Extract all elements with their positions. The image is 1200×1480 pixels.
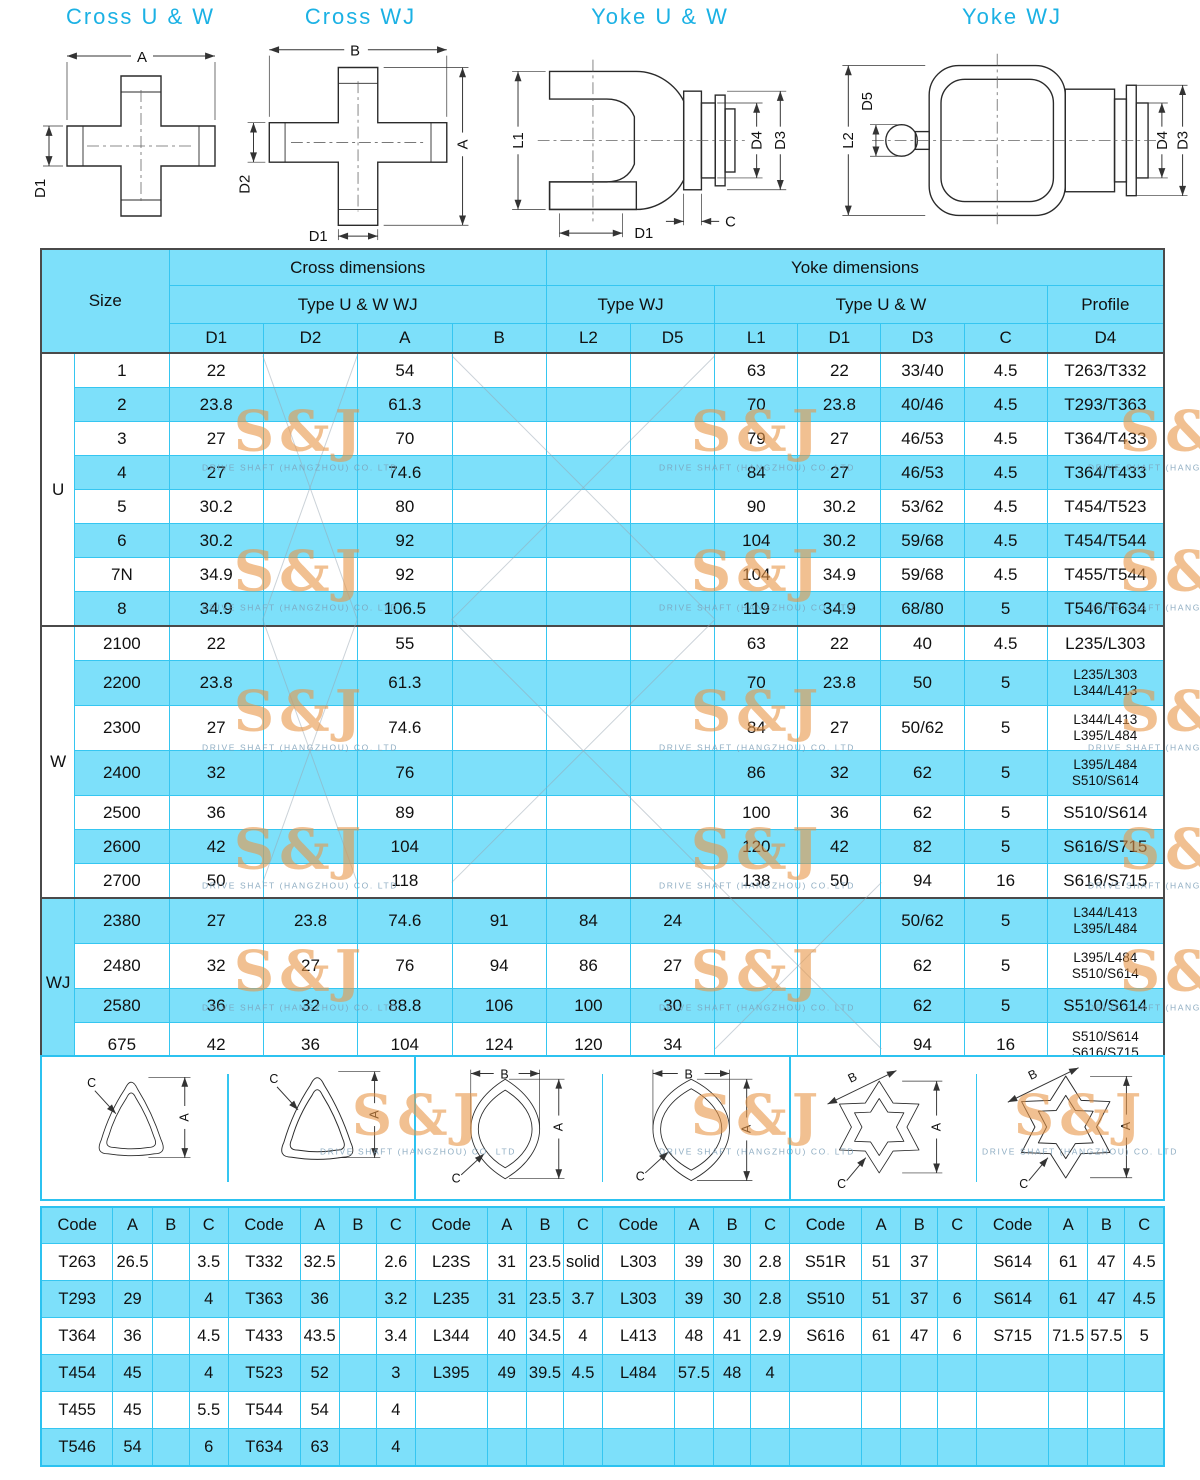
table-cell: 39 — [674, 1281, 713, 1318]
triangle-profile-drawing: A C — [239, 1062, 404, 1194]
table-cell: 47 — [901, 1318, 938, 1355]
table-cell — [751, 1429, 790, 1467]
table-cell: T454/T544 — [1047, 524, 1164, 558]
dim-label-c: C — [1020, 1177, 1029, 1191]
table-cell — [1088, 1429, 1125, 1467]
dim-label-d5: D5 — [860, 92, 876, 111]
table-cell — [1088, 1392, 1125, 1429]
table-cell — [901, 1355, 938, 1392]
dim-label-c: C — [837, 1177, 846, 1191]
lemon-profile-drawing: B A C — [427, 1062, 592, 1194]
table-cell: 36 — [169, 796, 263, 830]
table-cell: 34.9 — [169, 558, 263, 592]
table-cell — [861, 1392, 900, 1429]
table-cell: 89 — [358, 796, 452, 830]
table-cell: L303 — [602, 1244, 674, 1281]
table-cell: T544 — [228, 1392, 300, 1429]
table-cell: 5 — [964, 751, 1047, 796]
table-cell: 30 — [714, 1244, 751, 1281]
table-cell — [152, 1318, 189, 1355]
table-cell: S616/S715 — [1047, 830, 1164, 864]
table-cell: 63 — [715, 626, 798, 661]
table-cell: 2400 — [75, 751, 169, 796]
table-cell — [861, 1355, 900, 1392]
table-cell: 2600 — [75, 830, 169, 864]
table-cell — [452, 388, 546, 422]
table-cell — [487, 1429, 526, 1467]
table-cell — [631, 706, 715, 751]
table-cell — [631, 388, 715, 422]
table-cell: 45 — [113, 1355, 152, 1392]
table-cell — [631, 751, 715, 796]
table-cell: 76 — [358, 751, 452, 796]
column-header: D4 — [1047, 324, 1164, 354]
table-cell: 23.8 — [169, 661, 263, 706]
table-cell — [152, 1281, 189, 1318]
table-cell: 2580 — [75, 989, 169, 1023]
table-cell: 48 — [674, 1318, 713, 1355]
table-cell: solid — [564, 1244, 603, 1281]
table-cell: S616/S715 — [1047, 864, 1164, 899]
table-cell: 39 — [674, 1244, 713, 1281]
table-cell — [263, 524, 357, 558]
cross-uw-title: Cross U & W — [28, 4, 253, 30]
table-cell: 76 — [358, 944, 452, 989]
table-cell: 6 — [189, 1429, 228, 1467]
table-cell: 5 — [1125, 1318, 1164, 1355]
table-cell — [631, 490, 715, 524]
table-cell: L344 — [415, 1318, 487, 1355]
table-cell: 51 — [861, 1281, 900, 1318]
table-row: 2500368910036625S510/S614 — [41, 796, 1164, 830]
table-cell — [263, 592, 357, 627]
profile-lemon-large: B A C — [603, 1057, 789, 1199]
table-row: 2480322776948627625L395/L484S510/S614 — [41, 944, 1164, 989]
table-cell: T263 — [41, 1244, 113, 1281]
table-cell — [714, 1429, 751, 1467]
table-cell: 55 — [358, 626, 452, 661]
table-cell: 84 — [715, 456, 798, 490]
table-cell — [546, 706, 630, 751]
table-cell: 104 — [715, 558, 798, 592]
table-cell: 80 — [358, 490, 452, 524]
table-cell: 27 — [169, 422, 263, 456]
dim-label-a: A — [740, 1124, 754, 1133]
table-row: 32770792746/534.5T364/T433 — [41, 422, 1164, 456]
table-cell — [546, 796, 630, 830]
table-cell — [798, 989, 881, 1023]
table-cell: 27 — [169, 898, 263, 944]
table-cell: 40 — [487, 1318, 526, 1355]
table-cell — [452, 626, 546, 661]
table-cell: 36 — [169, 989, 263, 1023]
dim-label-a: A — [367, 1110, 381, 1119]
table-cell: 5 — [964, 830, 1047, 864]
table-cell — [263, 422, 357, 456]
dim-label-a: A — [552, 1122, 566, 1131]
main-table-body: U12254632233/404.5T263/T332223.861.37023… — [41, 353, 1164, 1068]
table-cell: 61 — [861, 1318, 900, 1355]
table-row: T293294T363363.2L2353123.53.7L30339302.8… — [41, 1281, 1164, 1318]
table-cell: L395 — [415, 1355, 487, 1392]
type-uw-header: Type U & W — [715, 286, 1047, 324]
table-cell: 22 — [169, 353, 263, 388]
table-cell — [452, 830, 546, 864]
table-cell: 4.5 — [964, 626, 1047, 661]
column-header: Code — [602, 1207, 674, 1244]
table-cell: 2.6 — [376, 1244, 415, 1281]
table-cell: 23.8 — [798, 661, 881, 706]
table-row: 42774.6842746/534.5T364/T433 — [41, 456, 1164, 490]
table-cell: 74.6 — [358, 706, 452, 751]
table-cell: 30.2 — [169, 490, 263, 524]
dim-label-d4: D4 — [749, 131, 765, 150]
table-cell: 4.5 — [189, 1318, 228, 1355]
table-cell: 27 — [798, 706, 881, 751]
table-cell — [674, 1392, 713, 1429]
table-cell: 4.5 — [1125, 1281, 1164, 1318]
table-cell: 3.5 — [189, 1244, 228, 1281]
table-cell — [546, 456, 630, 490]
table-cell — [452, 490, 546, 524]
table-cell: 2480 — [75, 944, 169, 989]
column-header: B — [714, 1207, 751, 1244]
table-cell: S614 — [977, 1244, 1049, 1281]
table-cell: 2100 — [75, 626, 169, 661]
row-group-label: U — [41, 353, 75, 626]
table-cell — [602, 1392, 674, 1429]
table-cell: S614 — [977, 1281, 1049, 1318]
table-cell — [263, 706, 357, 751]
table-cell: 40 — [881, 626, 964, 661]
table-cell: 48 — [714, 1355, 751, 1392]
table-cell: 5 — [964, 706, 1047, 751]
table-cell — [263, 558, 357, 592]
table-cell: S51R — [790, 1244, 862, 1281]
table-cell: 59/68 — [881, 524, 964, 558]
table-row: 834.9106.511934.968/805T546/T634 — [41, 592, 1164, 627]
profile-star-small: B A C — [789, 1057, 977, 1199]
table-cell: 34.9 — [798, 592, 881, 627]
table-cell: 27 — [169, 706, 263, 751]
table-cell: 91 — [452, 898, 546, 944]
dim-label-b: B — [500, 1067, 508, 1081]
table-cell: 5 — [964, 592, 1047, 627]
table-cell: T293 — [41, 1281, 113, 1318]
column-header: Code — [977, 1207, 1049, 1244]
table-cell: 30.2 — [798, 524, 881, 558]
row-group-label: WJ — [41, 898, 75, 1068]
table-cell — [1049, 1355, 1088, 1392]
column-header: B — [339, 1207, 376, 1244]
table-cell: 27 — [798, 422, 881, 456]
table-cell: S510 — [790, 1281, 862, 1318]
table-cell: 51 — [861, 1244, 900, 1281]
table-cell: 86 — [546, 944, 630, 989]
dim-label-b: B — [846, 1070, 860, 1086]
cross-wj-diagram: Cross WJ B A — [238, 4, 483, 244]
table-cell: 62 — [881, 989, 964, 1023]
table-cell: 2200 — [75, 661, 169, 706]
table-cell — [751, 1392, 790, 1429]
table-cell: 32 — [798, 751, 881, 796]
table-cell — [546, 524, 630, 558]
table-cell: 3.2 — [376, 1281, 415, 1318]
table-cell: 2.8 — [751, 1244, 790, 1281]
table-cell: L413 — [602, 1318, 674, 1355]
table-cell — [339, 1392, 376, 1429]
table-cell: 54 — [113, 1429, 152, 1467]
table-cell: 104 — [715, 524, 798, 558]
table-cell — [263, 751, 357, 796]
dim-label-a: A — [930, 1122, 944, 1131]
table-cell: 82 — [881, 830, 964, 864]
table-cell: 32.5 — [300, 1244, 339, 1281]
table-cell: 4 — [75, 456, 169, 490]
table-cell: 100 — [715, 796, 798, 830]
table-cell: 94 — [452, 944, 546, 989]
table-cell — [715, 989, 798, 1023]
table-cell: 39.5 — [526, 1355, 563, 1392]
table-cell — [977, 1429, 1049, 1467]
table-row: 530.2809030.253/624.5T454/T523 — [41, 490, 1164, 524]
column-header: Code — [41, 1207, 113, 1244]
table-cell: T364/T433 — [1047, 422, 1164, 456]
table-cell — [1049, 1429, 1088, 1467]
table-row: 26004210412042825S616/S715 — [41, 830, 1164, 864]
table-cell — [631, 796, 715, 830]
table-cell: 61 — [1049, 1244, 1088, 1281]
table-cell: 100 — [546, 989, 630, 1023]
table-cell — [263, 864, 357, 899]
table-cell: L344/L413L395/L484 — [1047, 898, 1164, 944]
table-cell: 23.8 — [169, 388, 263, 422]
table-cell: 32 — [169, 751, 263, 796]
table-row: 2580363288.810610030625S510/S614 — [41, 989, 1164, 1023]
size-column-header: Size — [41, 249, 169, 353]
table-cell: 104 — [358, 830, 452, 864]
dim-label-d2: D2 — [238, 175, 254, 194]
table-cell: T546/T634 — [1047, 592, 1164, 627]
column-header: A — [358, 324, 452, 354]
yoke-wj-diagram: Yoke WJ L2 D5 — [828, 4, 1196, 244]
table-cell: 70 — [715, 661, 798, 706]
table-cell — [798, 898, 881, 944]
table-cell: 47 — [1088, 1281, 1125, 1318]
table-cell: 5 — [964, 796, 1047, 830]
table-cell: T634 — [228, 1429, 300, 1467]
column-header: D3 — [881, 324, 964, 354]
table-cell — [631, 558, 715, 592]
table-cell — [452, 558, 546, 592]
table-cell — [263, 456, 357, 490]
table-cell — [263, 830, 357, 864]
table-cell: 84 — [715, 706, 798, 751]
table-row: 223.861.37023.840/464.5T293/T363 — [41, 388, 1164, 422]
table-cell: 2.8 — [751, 1281, 790, 1318]
column-header: L1 — [715, 324, 798, 354]
dim-label-c: C — [636, 1170, 645, 1184]
table-cell — [546, 558, 630, 592]
main-subheader-row: D1D2ABL2D5L1D1D3CD4 — [41, 324, 1164, 354]
table-cell: 4.5 — [964, 456, 1047, 490]
table-cell — [901, 1429, 938, 1467]
table-cell: 4.5 — [964, 422, 1047, 456]
dim-label-a: A — [137, 49, 147, 66]
table-cell: 30.2 — [169, 524, 263, 558]
column-header: B — [152, 1207, 189, 1244]
table-row: 7N34.99210434.959/684.5T455/T544 — [41, 558, 1164, 592]
table-cell: 27 — [798, 456, 881, 490]
column-header: Code — [790, 1207, 862, 1244]
table-cell: 22 — [798, 353, 881, 388]
table-cell: 37 — [901, 1244, 938, 1281]
table-cell: 90 — [715, 490, 798, 524]
dimensions-table: Size Cross dimensions Yoke dimensions Ty… — [40, 248, 1165, 1069]
table-cell: L395/L484S510/S614 — [1047, 944, 1164, 989]
table-cell — [546, 830, 630, 864]
table-cell: 63 — [300, 1429, 339, 1467]
table-cell — [546, 353, 630, 388]
table-cell — [602, 1429, 674, 1467]
table-cell: T454/T523 — [1047, 490, 1164, 524]
table-cell — [263, 490, 357, 524]
table-cell: 23.8 — [798, 388, 881, 422]
table-cell: 46/53 — [881, 456, 964, 490]
table-cell — [263, 796, 357, 830]
table-cell: 4 — [189, 1281, 228, 1318]
table-cell — [901, 1392, 938, 1429]
dim-label-d3: D3 — [773, 131, 789, 150]
table-cell: 34.9 — [798, 558, 881, 592]
table-row: 23002774.6842750/625L344/L413L395/L484 — [41, 706, 1164, 751]
table-cell: T332 — [228, 1244, 300, 1281]
table-row: 220023.861.37023.8505L235/L303L344/L413 — [41, 661, 1164, 706]
column-header: A — [300, 1207, 339, 1244]
table-cell: 32 — [263, 989, 357, 1023]
table-cell — [452, 796, 546, 830]
table-cell — [631, 456, 715, 490]
dim-label-b: B — [685, 1067, 693, 1081]
cross-uw-drawing: A D1 — [31, 32, 251, 244]
cross-wj-title: Cross WJ — [238, 4, 483, 30]
table-cell — [631, 422, 715, 456]
table-cell: S616 — [790, 1318, 862, 1355]
table-cell — [977, 1355, 1049, 1392]
table-cell: 23.8 — [263, 898, 357, 944]
column-header: A — [674, 1207, 713, 1244]
yoke-uw-drawing: L1 D4 D3 C D1 — [488, 32, 833, 244]
table-cell — [339, 1244, 376, 1281]
column-header: A — [487, 1207, 526, 1244]
table-cell — [546, 864, 630, 899]
table-cell — [1049, 1392, 1088, 1429]
yoke-wj-drawing: L2 D5 D4 D3 — [828, 32, 1196, 244]
table-cell — [415, 1392, 487, 1429]
column-header: Code — [228, 1207, 300, 1244]
dim-label-d1: D1 — [309, 229, 328, 244]
table-cell — [564, 1392, 603, 1429]
table-cell: 36 — [300, 1281, 339, 1318]
table-cell — [790, 1392, 862, 1429]
dim-label-c: C — [269, 1072, 278, 1086]
table-cell: 52 — [300, 1355, 339, 1392]
table-cell — [526, 1392, 563, 1429]
dim-label-d1: D1 — [32, 179, 49, 198]
table-cell — [152, 1392, 189, 1429]
table-cell — [339, 1429, 376, 1467]
table-cell — [631, 830, 715, 864]
table-cell: 4.5 — [964, 490, 1047, 524]
table-cell: 4.5 — [1125, 1244, 1164, 1281]
table-cell — [452, 524, 546, 558]
table-cell: 8 — [75, 592, 169, 627]
table-cell: 5.5 — [189, 1392, 228, 1429]
dim-label-c: C — [87, 1076, 96, 1090]
dim-label-a: A — [177, 1113, 191, 1122]
table-cell — [487, 1392, 526, 1429]
table-cell: 16 — [964, 864, 1047, 899]
table-cell — [631, 626, 715, 661]
table-cell: 36 — [798, 796, 881, 830]
dim-label-a: A — [1120, 1121, 1134, 1130]
table-cell — [631, 524, 715, 558]
table-cell: 74.6 — [358, 898, 452, 944]
dim-label-l1: L1 — [510, 132, 526, 148]
table-cell: 31 — [487, 1244, 526, 1281]
table-cell: 4 — [564, 1318, 603, 1355]
table-cell — [452, 456, 546, 490]
cross-dimensions-header: Cross dimensions — [169, 249, 546, 286]
row-group-label: W — [41, 626, 75, 898]
table-cell: 4 — [376, 1429, 415, 1467]
table-cell: 4 — [376, 1392, 415, 1429]
table-cell: 6 — [938, 1318, 977, 1355]
column-header: C — [189, 1207, 228, 1244]
column-header: C — [1125, 1207, 1164, 1244]
table-row: 630.29210430.259/684.5T454/T544 — [41, 524, 1164, 558]
table-cell: 46/53 — [881, 422, 964, 456]
table-cell: 54 — [300, 1392, 339, 1429]
star-profile-drawing: B A C — [987, 1062, 1152, 1194]
yoke-uw-title: Yoke U & W — [485, 4, 835, 30]
table-cell: 5 — [964, 898, 1047, 944]
column-header: D2 — [263, 324, 357, 354]
table-cell: L23S — [415, 1244, 487, 1281]
profile-code-table: CodeABCCodeABCCodeABCCodeABCCodeABCCodeA… — [40, 1206, 1165, 1467]
table-cell — [715, 898, 798, 944]
cross-wj-drawing: B A D2 D1 — [238, 32, 483, 244]
profile-lemon-small: B A C — [414, 1057, 602, 1199]
table-cell — [631, 864, 715, 899]
table-cell — [631, 661, 715, 706]
table-cell: 118 — [358, 864, 452, 899]
table-cell: 5 — [964, 944, 1047, 989]
table-cell: L235/L303L344/L413 — [1047, 661, 1164, 706]
table-cell: 5 — [75, 490, 169, 524]
table-cell: 30.2 — [798, 490, 881, 524]
table-cell: 2300 — [75, 706, 169, 751]
table-cell: T546 — [41, 1429, 113, 1467]
table-cell: T263/T332 — [1047, 353, 1164, 388]
table-cell — [263, 626, 357, 661]
table-cell — [546, 751, 630, 796]
table-cell: 79 — [715, 422, 798, 456]
dim-label-d3: D3 — [1176, 131, 1192, 150]
table-cell — [938, 1392, 977, 1429]
table-row: 240032768632625L395/L484S510/S614 — [41, 751, 1164, 796]
table-row: WJ23802723.874.691842450/625L344/L413L39… — [41, 898, 1164, 944]
